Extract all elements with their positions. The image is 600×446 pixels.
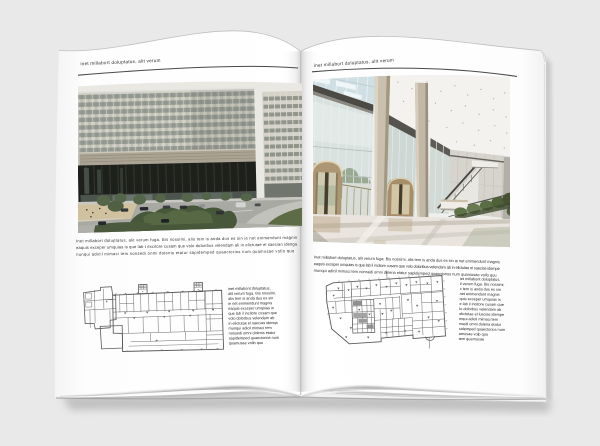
svg-text:alit verum fuga. Bis nossimi,: alit verum fuga. Bis nossimi, — [228, 291, 276, 296]
svg-text:tem quamusae: tem quamusae — [459, 337, 485, 342]
svg-text:que lab il incitore cusam que: que lab il incitore cusam que — [228, 311, 277, 316]
svg-text:iet millabont doluptatus,: iet millabont doluptatus, — [460, 277, 500, 282]
svg-text:amusae volp quu: amusae volp quu — [459, 332, 488, 337]
svg-text:volo dolorbus velendam ab: volo dolorbus velendam ab — [228, 316, 274, 321]
svg-text:alis tem is anda dus es sin: alis tem is anda dus es sin — [228, 296, 273, 301]
svg-text:nonsedi omni dolenis etatur: nonsedi omni dolenis etatur — [229, 331, 277, 336]
svg-text:munqui adicil mimaci tem: munqui adicil mimaci tem — [229, 326, 272, 331]
svg-text:mqui adicil mimaci tem: mqui adicil mimaci tem — [459, 317, 498, 322]
svg-text:inet millabont doluptatus,: inet millabont doluptatus, — [228, 286, 271, 291]
svg-text:ie net enimendunt magnis: ie net enimendunt magnis — [228, 301, 272, 306]
svg-text:quamusae vollo quu: quamusae vollo quu — [229, 341, 263, 345]
svg-text:sapidemped quaectorios num: sapidemped quaectorios num — [229, 336, 279, 341]
svg-text:net enimendunt magnis: net enimendunt magnis — [460, 292, 500, 297]
svg-text:eaquis exceper umquias is: eaquis exceper umquias is — [228, 306, 274, 311]
svg-text:in elictutae el saecias idenqa: in elictutae el saecias idenqa — [228, 321, 278, 326]
